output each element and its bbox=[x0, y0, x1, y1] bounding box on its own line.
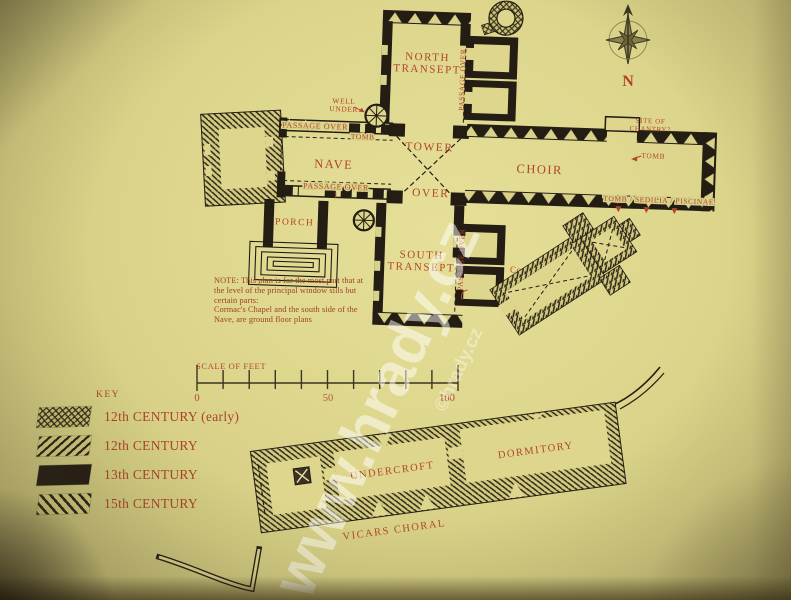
scale-mid: 50 bbox=[323, 393, 334, 404]
swatch-15th-century bbox=[36, 493, 91, 514]
label-porch: PORCH bbox=[275, 217, 315, 228]
spiral-stair-north bbox=[365, 104, 388, 127]
cormacs-chapel-plan bbox=[481, 193, 659, 350]
key-title: KEY bbox=[96, 390, 239, 400]
west-tower-building bbox=[201, 110, 286, 206]
compass-rose: N bbox=[606, 4, 650, 90]
boundary-wall-northeast bbox=[615, 367, 664, 409]
boundary-wall-southwest bbox=[159, 549, 259, 589]
scale-title: SCALE OF FEET bbox=[196, 361, 266, 371]
key-label: 15th CENTURY bbox=[104, 496, 198, 512]
spiral-stair-south bbox=[353, 210, 374, 231]
note-line: Cormac's Chapel and the south side of th… bbox=[214, 305, 386, 315]
swatch-12th-century bbox=[36, 435, 91, 456]
label-nave: NAVE bbox=[314, 157, 354, 172]
swatch-12th-century-early bbox=[36, 406, 91, 427]
label-well-under-2: UNDER bbox=[329, 104, 358, 114]
label-choir: CHOIR bbox=[516, 162, 563, 178]
key-row-15th: 15th CENTURY bbox=[38, 493, 239, 515]
label-tomb-nave: TOMB bbox=[351, 132, 375, 142]
plan-note: NOTE: This plan is for the most part tha… bbox=[214, 276, 386, 325]
photographed-floor-plan: NORTH TRANSEPT PASSAGE OVER WELL UNDER P… bbox=[0, 0, 791, 600]
note-line: NOTE: This plan is for the most part tha… bbox=[214, 276, 386, 286]
compass-north-label: N bbox=[622, 73, 634, 90]
key-label: 13th CENTURY bbox=[104, 467, 198, 483]
label-tower-over: OVER bbox=[412, 187, 450, 200]
key-row-12th: 12th CENTURY bbox=[38, 435, 239, 457]
note-line: certain parts: bbox=[214, 296, 386, 306]
note-line: the level of the principal window sills … bbox=[214, 286, 386, 296]
note-line: Nave, are ground floor plans bbox=[214, 315, 386, 325]
key-row-13th: 13th CENTURY bbox=[38, 464, 239, 486]
key-label: 12th CENTURY (early) bbox=[104, 409, 239, 425]
label-north-transept-2: TRANSEPT bbox=[393, 62, 461, 76]
key-label: 12th CENTURY bbox=[104, 438, 198, 454]
key-row-12th-early: 12th CENTURY (early) bbox=[38, 406, 239, 428]
label-tower: TOWER bbox=[405, 141, 454, 155]
legend-key: KEY 12th CENTURY (early) 12th CENTURY 13… bbox=[38, 390, 239, 522]
swatch-13th-century bbox=[36, 464, 91, 485]
label-site-of-chantry-2: CHANTRY? bbox=[629, 125, 671, 134]
label-passage-over-nave-south: PASSAGE OVER bbox=[303, 181, 369, 192]
label-tomb-choir: TOMB bbox=[641, 151, 665, 161]
